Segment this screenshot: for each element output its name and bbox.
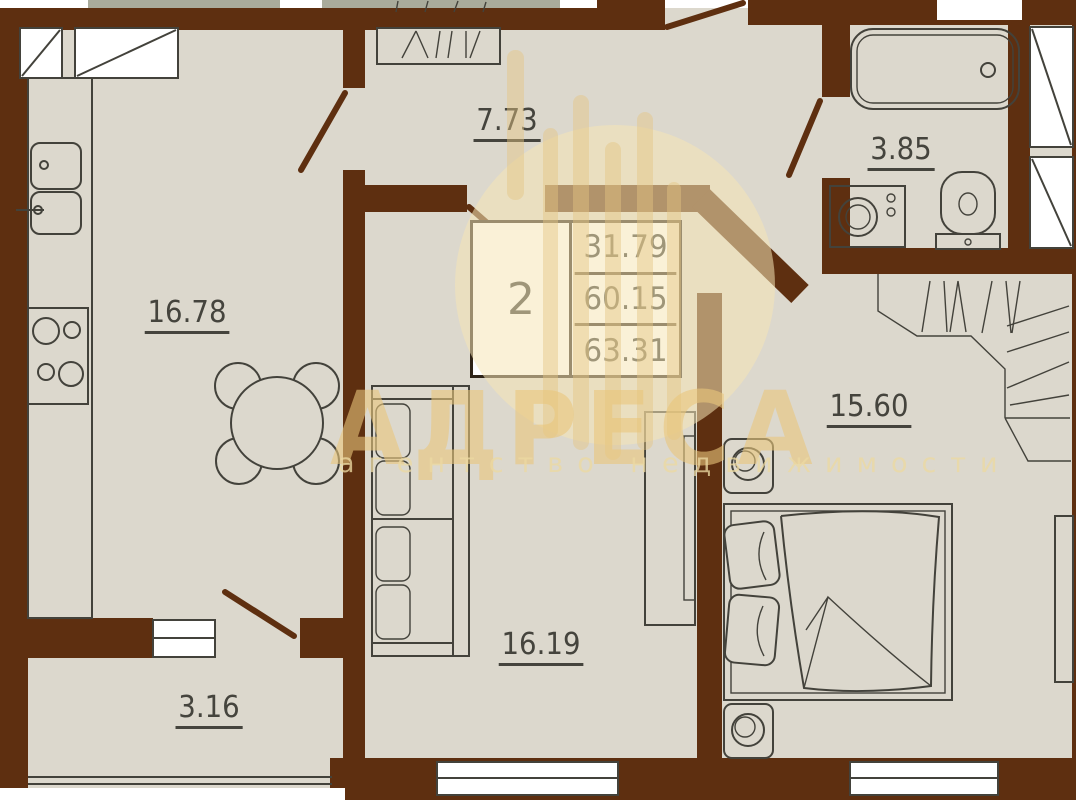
kitchen-door-leaf (301, 93, 345, 170)
room-label-hallway: 7.73 (474, 103, 541, 142)
window-living (437, 762, 618, 795)
shaft-icon (1030, 27, 1073, 248)
toilet-icon (936, 172, 1000, 249)
bathtub-icon (851, 29, 1019, 109)
dresser-icon (1055, 516, 1073, 682)
stair-ticks (396, 1, 486, 12)
balcony-door-leaf (225, 592, 294, 636)
room-label-balcony: 3.16 (176, 690, 243, 729)
vent-box-icon (20, 28, 178, 78)
living-area-value: 31.79 (575, 223, 677, 275)
sofa-icon (372, 386, 469, 656)
apartment-info-table: 2 31.79 60.15 63.31 (470, 220, 682, 378)
washing-machine-icon (830, 186, 905, 247)
balcony-glazing (28, 777, 332, 784)
kitchen-counter (28, 78, 92, 618)
room-label-bathroom: 3.85 (868, 132, 935, 171)
bathroom-door-leaf (789, 101, 820, 175)
wall-diagonal-bedroom (701, 198, 800, 294)
window-kitchen-balcony (153, 620, 215, 657)
entrance-door-leaf (667, 3, 743, 27)
tv-cabinet-icon (645, 412, 695, 625)
bed-icon (723, 504, 952, 700)
bedroom-wardrobe-icon (878, 274, 1071, 461)
room-label-living: 16.19 (499, 627, 584, 666)
kitchen-sink-icon (16, 143, 81, 234)
room-label-kitchen: 16.78 (145, 295, 230, 334)
room-label-bedroom: 15.60 (827, 389, 912, 428)
floor-plan: 16.78 7.73 3.85 15.60 16.19 3.16 2 31.79… (0, 0, 1076, 800)
stove-icon (28, 308, 88, 404)
rooms-count: 2 (473, 223, 572, 375)
total-area-value: 63.31 (575, 326, 677, 375)
window-bedroom (850, 762, 998, 795)
usable-area-value: 60.15 (575, 275, 677, 327)
hall-wardrobe-icon (377, 28, 500, 64)
dining-table-icon (215, 363, 339, 484)
